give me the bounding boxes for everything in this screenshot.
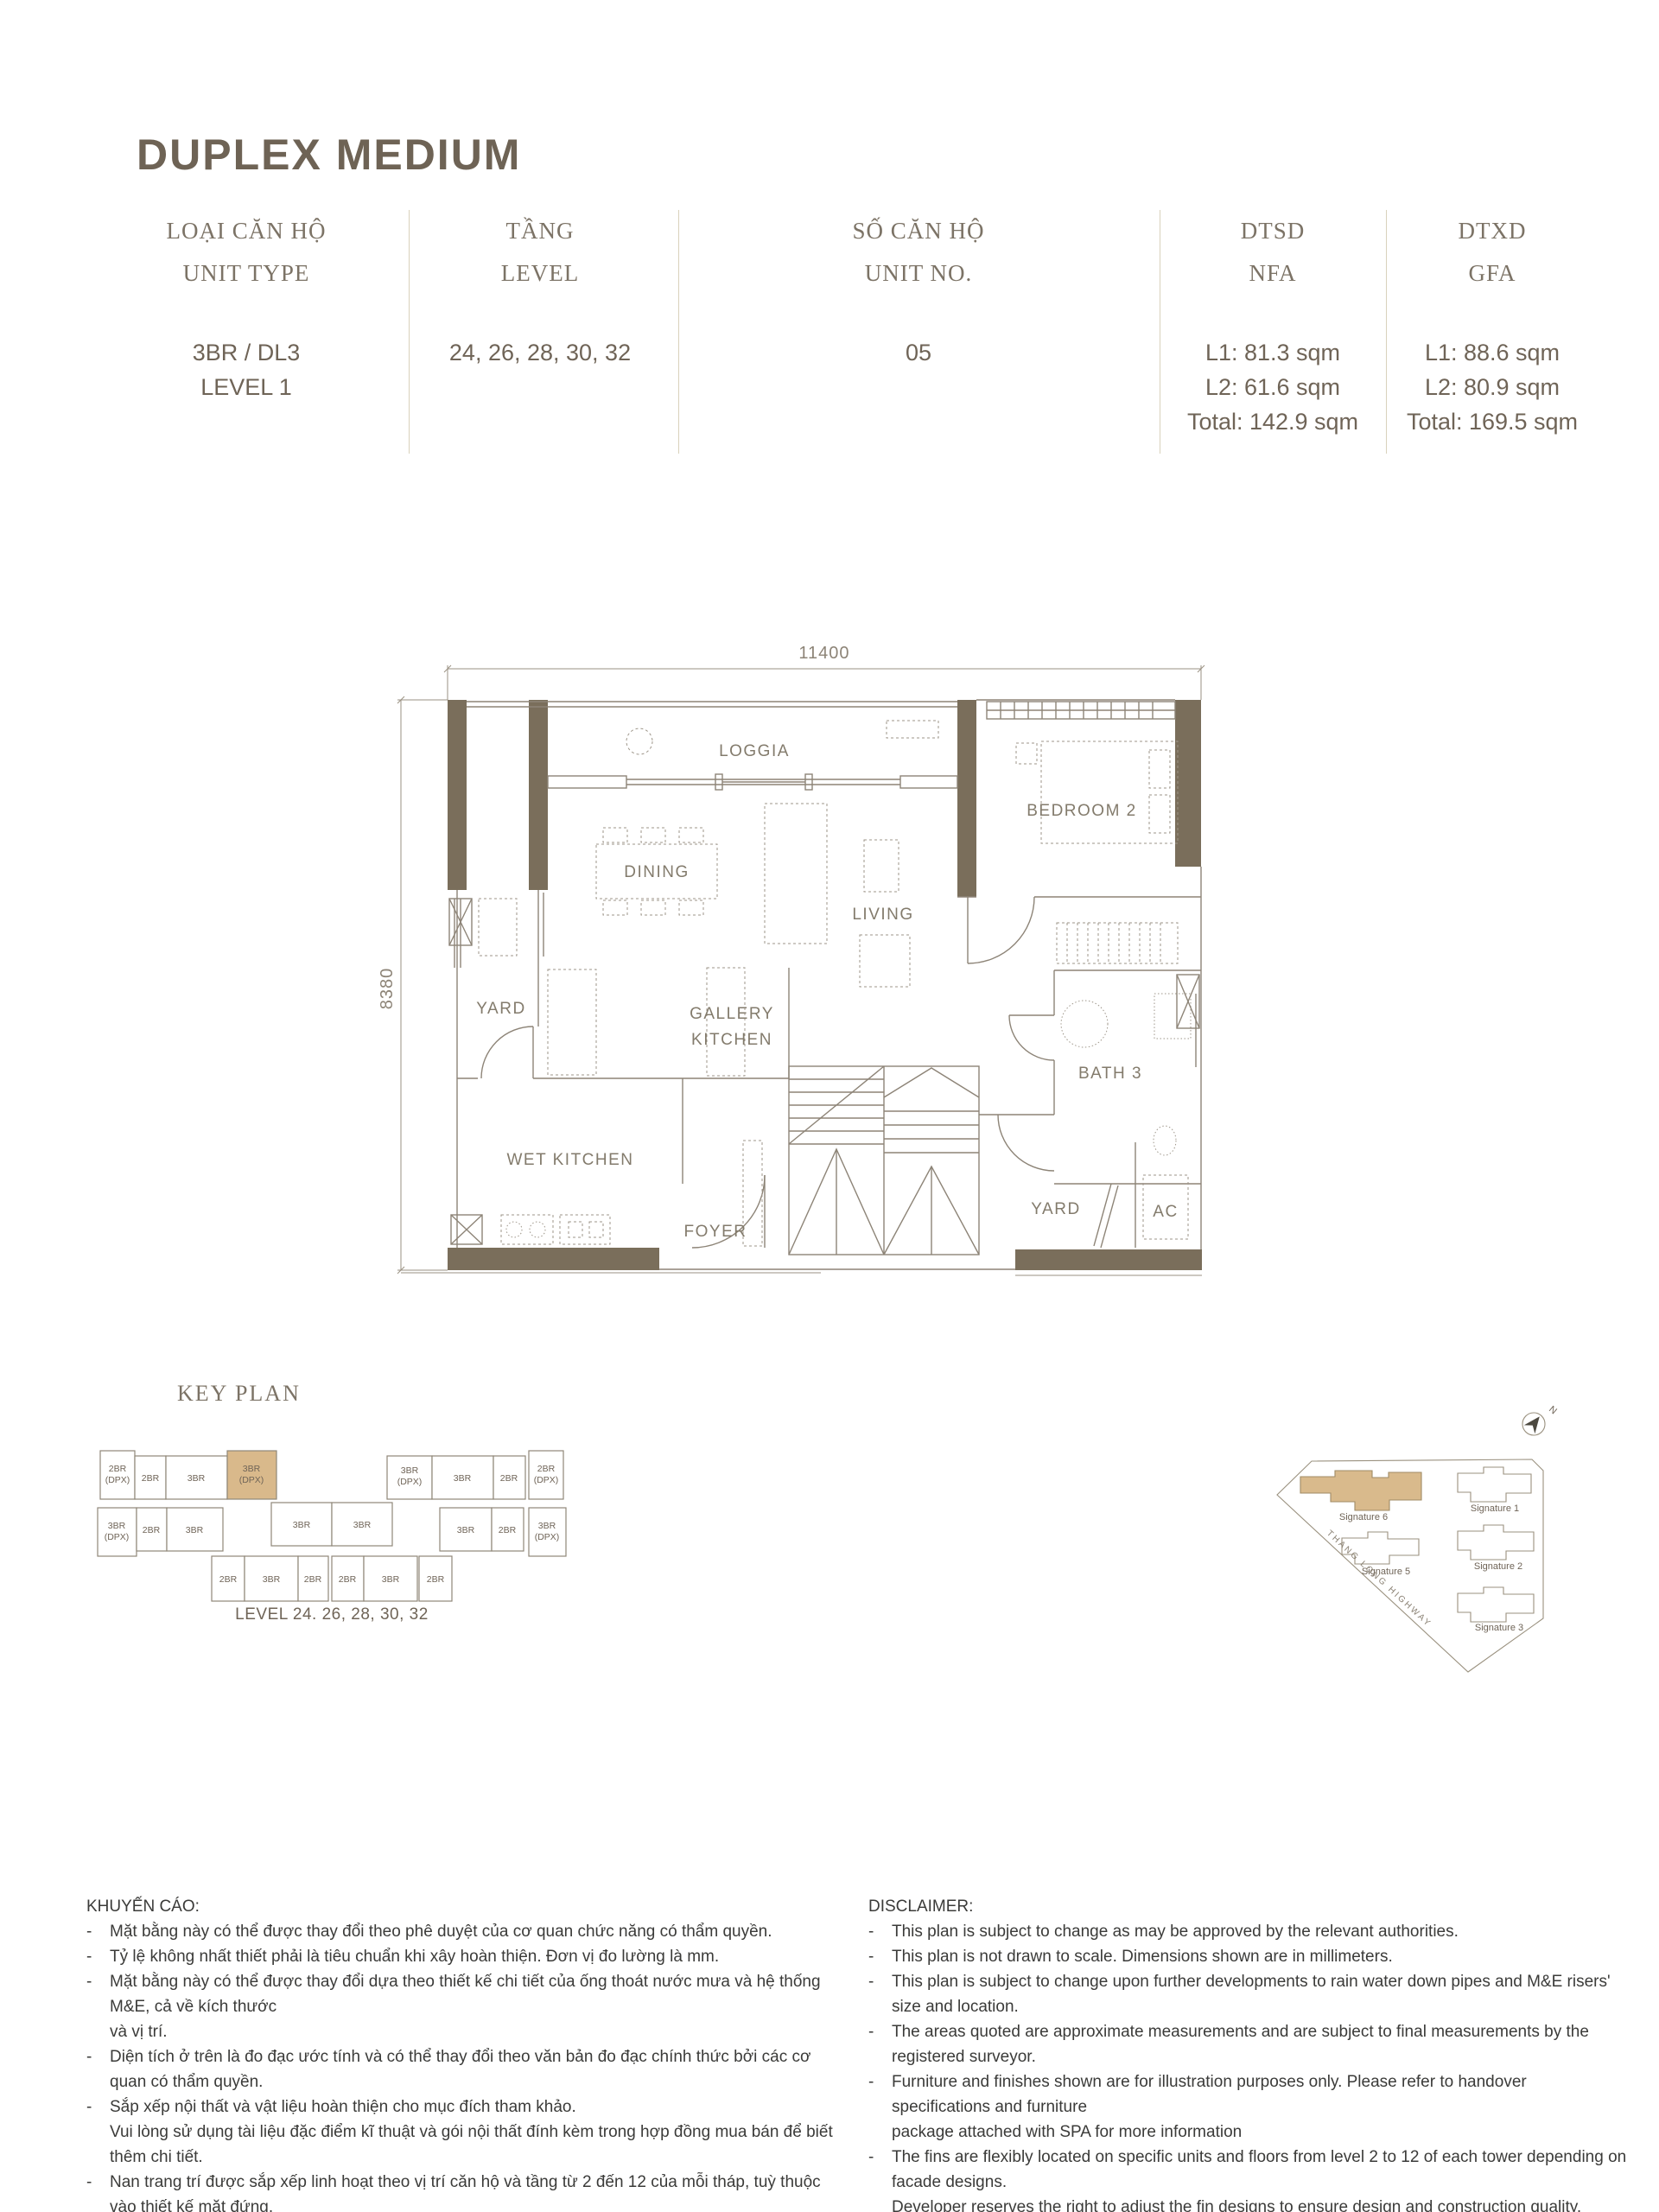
walls: [448, 700, 1202, 1270]
door-arcs: [481, 897, 1054, 1248]
keyplan-unit: 3BR: [167, 1508, 223, 1551]
keyplan-unit: 2BR(DPX): [529, 1451, 563, 1499]
room-label-dining: DINING: [624, 863, 690, 881]
keyplan-unit: 3BR: [245, 1556, 298, 1601]
svg-text:3BR: 3BR: [353, 1520, 372, 1530]
highway-label: THANG LONG HIGHWAY: [1325, 1529, 1433, 1630]
room-label-loggia: LOGGIA: [719, 742, 790, 760]
unit-no-value: 05: [906, 335, 931, 370]
svg-text:2BR: 2BR: [499, 1525, 517, 1535]
keyplan-unit: 2BR: [212, 1556, 245, 1601]
label-signature-6: Signature 6: [1339, 1512, 1388, 1522]
svg-text:3BR: 3BR: [454, 1473, 472, 1484]
room-label-ac: AC: [1153, 1203, 1178, 1221]
gfa-l2: L2: 80.9 sqm: [1407, 370, 1578, 404]
nfa-total: Total: 142.9 sqm: [1187, 404, 1358, 439]
svg-text:3BR: 3BR: [457, 1525, 475, 1535]
col-level-en: LEVEL: [501, 260, 579, 287]
site-plan-diagram: N Signature 6 Signature 1 Signature 5 Si…: [1244, 1391, 1659, 1771]
svg-text:2BR: 2BR: [304, 1574, 322, 1585]
gfa-l1: L1: 88.6 sqm: [1407, 335, 1578, 370]
floor-plan: 11400 8380: [372, 631, 1253, 1305]
brochure-page: DUPLEX MEDIUM LOẠI CĂN HỘ UNIT TYPE 3BR …: [0, 0, 1659, 2212]
keyplan-unit-highlighted: 3BR(DPX): [227, 1451, 276, 1499]
table-divider: [1386, 210, 1387, 454]
keyplan-unit: 2BR: [492, 1508, 524, 1551]
col-gfa-values: L1: 88.6 sqm L2: 80.9 sqm Total: 169.5 s…: [1407, 335, 1578, 439]
svg-text:2BR: 2BR: [339, 1574, 357, 1585]
keyplan-unit: 3BR: [166, 1456, 227, 1499]
disclaimer-line: -The areas quoted are approximate measur…: [868, 2019, 1629, 2069]
dimension-lines: 11400 8380: [378, 644, 1205, 1275]
disclaimer-line: Developer reserves the right to adjust t…: [868, 2195, 1629, 2212]
svg-text:2BR: 2BR: [109, 1464, 127, 1474]
key-plan-title: KEY PLAN: [177, 1381, 301, 1407]
svg-text:3BR: 3BR: [108, 1521, 126, 1531]
keyplan-unit: 2BR: [419, 1556, 452, 1601]
svg-text:3BR: 3BR: [382, 1574, 400, 1585]
col-level-values: 24, 26, 28, 30, 32: [449, 335, 631, 370]
col-unit-no-vn: SỐ CĂN HỘ: [852, 218, 984, 245]
building-signature-3: [1458, 1587, 1534, 1622]
keyplan-unit: 2BR: [137, 1508, 167, 1551]
svg-text:(DPX): (DPX): [397, 1477, 423, 1487]
gfa-total: Total: 169.5 sqm: [1407, 404, 1578, 439]
disclaimer-line: package attached with SPA for more infor…: [868, 2120, 1629, 2145]
room-label-bath3: BATH 3: [1078, 1065, 1142, 1083]
svg-text:2BR: 2BR: [427, 1574, 445, 1585]
advisory-line: Vui lòng sử dụng tài liệu đặc điểm kĩ th…: [86, 2120, 851, 2170]
advisory-line: -Mặt bằng này có thể được thay đổi dựa t…: [86, 1969, 851, 2019]
svg-text:2BR: 2BR: [500, 1473, 518, 1484]
advisory-line: -Diện tích ở trên là đo đạc ước tính và …: [86, 2044, 851, 2094]
disclaimer-line: -This plan is subject to change upon fur…: [868, 1969, 1629, 2019]
table-divider: [678, 210, 679, 454]
col-unit-type-en: UNIT TYPE: [183, 260, 310, 287]
room-label-wet-kitchen: WET KITCHEN: [506, 1151, 633, 1169]
partitions: [454, 700, 1201, 1269]
disclaimer-line: -This plan is not drawn to scale. Dimens…: [868, 1944, 1629, 1969]
keyplan-unit: 3BR: [364, 1556, 417, 1601]
advisory-line: -Sắp xếp nội thất và vật liệu hoàn thiện…: [86, 2094, 851, 2120]
keyplan-unit: 3BR: [432, 1456, 493, 1499]
col-unit-no-en: UNIT NO.: [865, 260, 973, 287]
keyplan-unit: 3BR(DPX): [529, 1508, 566, 1556]
keyplan-unit: 2BR(DPX): [100, 1451, 135, 1499]
key-plan-diagram: 2BR(DPX) 2BR 3BR 3BR(DPX) 3BR(DPX) 3BR 2…: [86, 1430, 588, 1629]
svg-text:(DPX): (DPX): [105, 1475, 130, 1485]
room-labels: LOGGIA BEDROOM 2 DINING LIVING YARD GALL…: [476, 742, 1178, 1241]
advisory-line: -Tỷ lệ không nhất thiết phải là tiêu chu…: [86, 1944, 851, 1969]
building-signature-6: [1300, 1471, 1421, 1510]
svg-text:3BR: 3BR: [538, 1521, 556, 1531]
keyplan-unit: 2BR: [298, 1556, 328, 1601]
room-label-gallery-1: GALLERY: [690, 1005, 774, 1023]
svg-text:(DPX): (DPX): [239, 1475, 264, 1485]
nfa-l2: L2: 61.6 sqm: [1187, 370, 1358, 404]
col-gfa-vn: DTXD: [1459, 218, 1527, 245]
disclaimer-line: -The fins are flexibly located on specif…: [868, 2145, 1629, 2195]
svg-text:2BR: 2BR: [143, 1525, 161, 1535]
advisory-heading: KHUYẾN CÁO:: [86, 1894, 851, 1919]
svg-text:2BR: 2BR: [142, 1473, 160, 1484]
col-level-vn: TẦNG: [506, 218, 575, 245]
col-nfa-en: NFA: [1249, 260, 1296, 287]
page-title: DUPLEX MEDIUM: [137, 130, 521, 180]
table-divider: [1160, 210, 1160, 454]
advisory-line: -Nan trang trí được sắp xếp linh hoạt th…: [86, 2170, 851, 2212]
col-nfa-values: L1: 81.3 sqm L2: 61.6 sqm Total: 142.9 s…: [1187, 335, 1358, 439]
col-nfa-vn: DTSD: [1241, 218, 1306, 245]
room-label-gallery-2: KITCHEN: [691, 1031, 772, 1049]
svg-text:(DPX): (DPX): [534, 1475, 559, 1485]
advisory-line: và vị trí.: [86, 2019, 851, 2044]
col-unit-type-values: 3BR / DL3 LEVEL 1: [193, 335, 301, 404]
building-signature-1: [1458, 1467, 1531, 1502]
svg-text:2BR: 2BR: [537, 1464, 556, 1474]
north-compass-icon: N: [1522, 1404, 1559, 1435]
svg-text:3BR: 3BR: [186, 1525, 204, 1535]
keyplan-unit: 3BR: [332, 1503, 392, 1546]
col-unit-type-vn: LOẠI CĂN HỘ: [167, 218, 327, 245]
label-signature-1: Signature 1: [1471, 1503, 1519, 1514]
room-label-yard-right: YARD: [1031, 1200, 1080, 1218]
levels-value: 24, 26, 28, 30, 32: [449, 335, 631, 370]
svg-text:3BR: 3BR: [293, 1520, 311, 1530]
disclaimer-en: DISCLAIMER: -This plan is subject to cha…: [868, 1894, 1629, 2212]
dim-height-label: 8380: [378, 968, 397, 1010]
svg-text:2BR: 2BR: [219, 1574, 238, 1585]
table-divider: [409, 210, 410, 454]
disclaimer-line: -Furniture and finishes shown are for il…: [868, 2069, 1629, 2120]
svg-text:(DPX): (DPX): [105, 1532, 130, 1542]
room-label-bedroom2: BEDROOM 2: [1027, 802, 1137, 820]
svg-text:3BR: 3BR: [401, 1465, 419, 1476]
svg-text:N: N: [1547, 1404, 1559, 1416]
building-signature-2: [1458, 1525, 1534, 1560]
advisory-vn: KHUYẾN CÁO: -Mặt bằng này có thể được th…: [86, 1894, 851, 2212]
label-signature-2: Signature 2: [1474, 1561, 1522, 1572]
unit-type-value: 3BR / DL3: [193, 335, 301, 370]
stairs: [789, 1066, 979, 1255]
keyplan-unit: 3BR(DPX): [387, 1456, 432, 1499]
svg-text:3BR: 3BR: [188, 1473, 206, 1484]
label-signature-3: Signature 3: [1475, 1623, 1523, 1633]
nfa-l1: L1: 81.3 sqm: [1187, 335, 1358, 370]
col-unit-no-values: 05: [906, 335, 931, 370]
col-gfa-en: GFA: [1468, 260, 1516, 287]
keyplan-unit: 2BR: [135, 1456, 166, 1499]
svg-text:3BR: 3BR: [243, 1464, 261, 1474]
room-label-living: LIVING: [852, 906, 913, 924]
unit-level-value: LEVEL 1: [193, 370, 301, 404]
svg-text:3BR: 3BR: [263, 1574, 281, 1585]
keyplan-unit: 3BR(DPX): [98, 1508, 137, 1556]
keyplan-unit: 3BR: [440, 1508, 492, 1551]
room-label-foyer: FOYER: [684, 1223, 747, 1241]
keyplan-unit: 2BR: [332, 1556, 364, 1601]
key-plan-level-label: LEVEL 24. 26, 28, 30, 32: [235, 1605, 429, 1624]
disclaimer-line: -This plan is subject to change as may b…: [868, 1919, 1629, 1944]
dim-width-label: 11400: [798, 644, 849, 663]
keyplan-unit: 2BR: [493, 1456, 525, 1499]
disclaimer-heading: DISCLAIMER:: [868, 1894, 1629, 1919]
svg-text:(DPX): (DPX): [535, 1532, 560, 1542]
keyplan-unit: 3BR: [271, 1503, 332, 1546]
advisory-line: -Mặt bằng này có thể được thay đổi theo …: [86, 1919, 851, 1944]
room-label-yard-left: YARD: [476, 1000, 525, 1018]
